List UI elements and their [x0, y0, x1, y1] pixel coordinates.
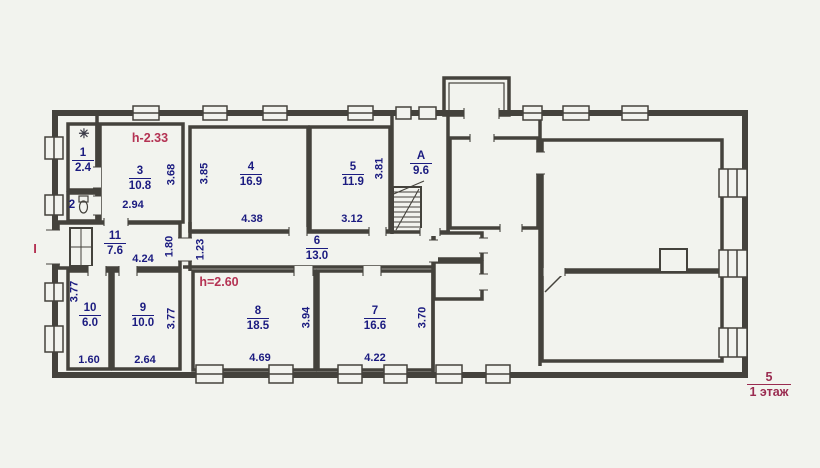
room-area: 11.9 [331, 175, 375, 189]
room-area: 9.6 [399, 164, 443, 178]
room-number: 9 [132, 302, 154, 316]
dimension-4-22: 4.22 [355, 352, 395, 365]
room-label-5: 511.9 [331, 161, 375, 189]
room-number: 8 [247, 305, 269, 319]
floor-plan-page: { "colors": { "wall": "#44423c", "navy_t… [0, 0, 820, 468]
room-area: 10.0 [121, 316, 165, 330]
room-number: 1 [72, 147, 94, 161]
room-label-3: 310.8 [118, 165, 162, 193]
staircase-icon [389, 181, 424, 232]
room-label-A: A9.6 [399, 150, 443, 178]
room-label-2: 2 [58, 199, 86, 212]
dimension-3-81: 3.81 [374, 149, 387, 189]
dimension-4-69: 4.69 [240, 352, 280, 365]
dimension-3-77-right: 3.77 [166, 299, 179, 339]
sheet-number: 5 [747, 370, 792, 385]
height-note-upper: h-2.33 [114, 132, 186, 145]
dimension-3-77-left: 3.77 [69, 272, 82, 312]
room-label-4: 416.9 [229, 161, 273, 189]
room-area: 6.0 [68, 316, 112, 330]
room-area: 16.9 [229, 175, 273, 189]
floor-label: 1 этаж [733, 385, 805, 399]
room-label-1: 12.4 [61, 147, 105, 175]
room-label-9: 910.0 [121, 302, 165, 330]
room-number: 3 [129, 165, 151, 179]
flue-block [660, 249, 687, 272]
dimension-3-70: 3.70 [417, 298, 430, 338]
room-number: A [410, 150, 432, 164]
room-area: 13.0 [295, 249, 339, 263]
dimension-1-80: 1.80 [164, 227, 177, 267]
sheet-caption: 5 1 этаж [733, 370, 805, 399]
room-label-8: 818.5 [236, 305, 280, 333]
room-area: 2.4 [61, 161, 105, 175]
dimension-1-23: 1.23 [195, 230, 208, 270]
room-number: 5 [342, 161, 364, 175]
height-note-lower: h=2.60 [183, 276, 255, 289]
room-number: 6 [306, 235, 328, 249]
dimension-3-68: 3.68 [166, 155, 179, 195]
room-area: 10.8 [118, 179, 162, 193]
dimension-4-24: 4.24 [123, 253, 163, 266]
windows [45, 106, 747, 383]
room-number: 11 [104, 230, 126, 244]
dimension-2-64: 2.64 [125, 354, 165, 367]
room-label-6: 613.0 [295, 235, 339, 263]
entrance-mark: I [28, 241, 42, 256]
dimension-1-60: 1.60 [69, 354, 109, 367]
room-number: 7 [364, 305, 386, 319]
room-number: 2 [64, 199, 80, 212]
room-area: 18.5 [236, 319, 280, 333]
dimension-2-94: 2.94 [113, 199, 153, 212]
room-area: 16.6 [353, 319, 397, 333]
dimension-3-94: 3.94 [301, 298, 314, 338]
room-number: 10 [79, 302, 101, 316]
room-label-7: 716.6 [353, 305, 397, 333]
room-number: 4 [240, 161, 262, 175]
shower-icon: ✳ [76, 126, 92, 142]
interior-walls [55, 116, 722, 372]
dimension-3-85: 3.85 [199, 154, 212, 194]
dimension-3-12: 3.12 [332, 213, 372, 226]
dimension-4-38: 4.38 [232, 213, 272, 226]
